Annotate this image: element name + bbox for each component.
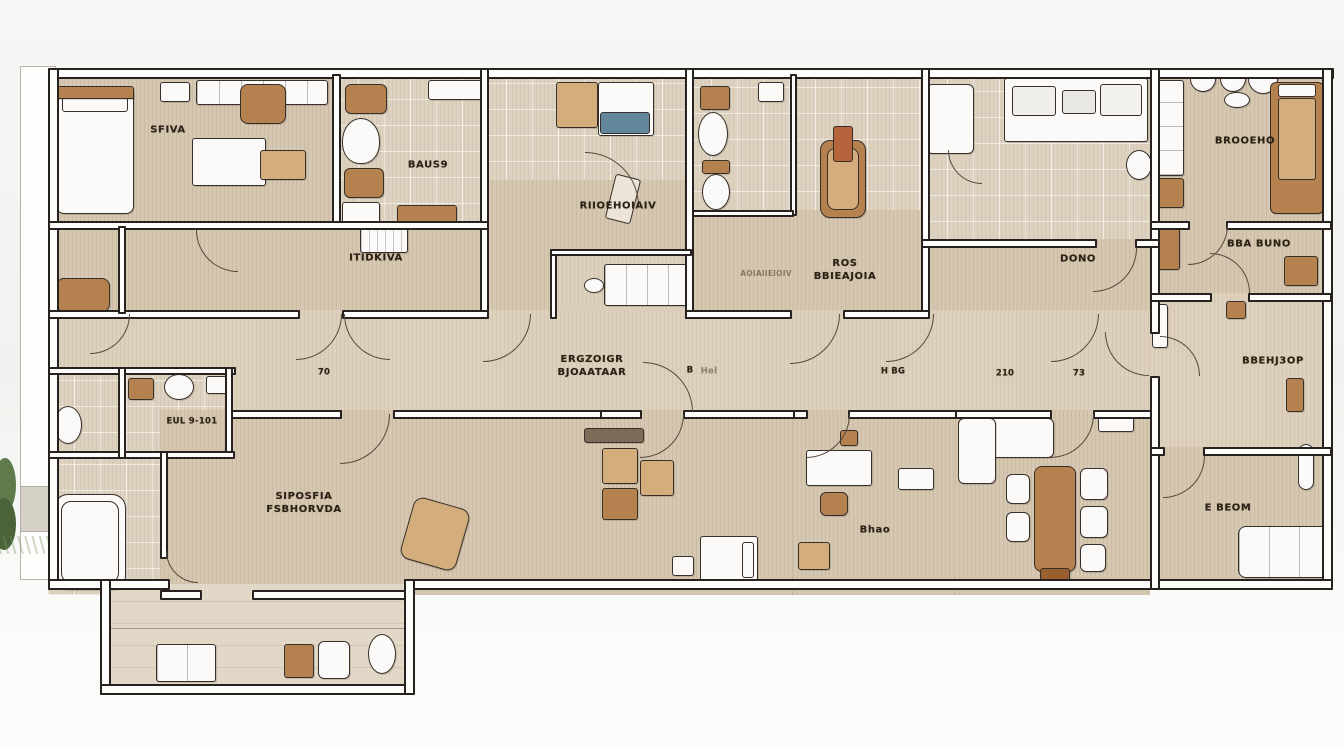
wall-segment: [48, 68, 59, 590]
wall-segment: [332, 74, 341, 226]
room-label-ros: ROS BBIEAJOIA: [814, 257, 877, 283]
nightstand: [672, 556, 694, 576]
sink-blue: [600, 112, 650, 134]
cabinet: [898, 468, 934, 490]
towel-rail: [833, 126, 853, 162]
cistern: [702, 160, 730, 174]
floor-plan: SFIVA BAUS9 ITIDKIVA RIIOEHOIAIV ROS BBI…: [0, 0, 1344, 750]
vanity: [128, 378, 154, 400]
extension-counter-line: [111, 628, 404, 630]
wall-segment: [404, 579, 415, 695]
wall-segment: [1150, 447, 1165, 456]
dresser: [1156, 178, 1184, 208]
dimension-marker: H BG: [881, 366, 905, 377]
dimension-marker: 73: [1073, 368, 1085, 379]
toilet-icon: [318, 641, 350, 679]
wall-segment: [955, 410, 1052, 419]
dimension-marker: 70: [318, 367, 330, 378]
radiator: [360, 227, 408, 253]
wall-segment: [921, 68, 930, 319]
wall-segment: [1135, 239, 1160, 248]
stove: [1012, 86, 1056, 116]
kitchen-cabinet: [556, 82, 598, 128]
wall-segment: [550, 249, 557, 319]
toilet-icon: [342, 118, 380, 164]
wall-segment: [160, 451, 168, 559]
wall-segment: [393, 410, 607, 419]
wall-segment: [790, 74, 797, 216]
headboard: [56, 86, 134, 99]
room-label-baus9: BAUS9: [408, 159, 448, 172]
dimension-marker: B: [687, 365, 694, 376]
room-label-eul: EUL 9-101: [167, 416, 218, 427]
shelf: [584, 428, 644, 443]
washbasin: [368, 634, 396, 674]
vanity: [284, 644, 314, 678]
wall-segment: [48, 310, 300, 319]
wall-segment: [48, 221, 489, 230]
shelf-unit: [604, 264, 692, 306]
room-ros-floor: [685, 210, 930, 319]
cistern: [700, 86, 730, 110]
washbasin: [1126, 150, 1152, 180]
cabinet: [344, 168, 384, 198]
room-label-siposfia-line2: FSBHORVDA: [266, 503, 341, 516]
wall-segment: [1093, 410, 1152, 419]
chair-icon: [1006, 512, 1030, 542]
vanity: [345, 84, 387, 114]
washbasin: [758, 82, 784, 102]
toilet-icon: [164, 374, 194, 400]
wall-segment: [550, 249, 692, 256]
sofa: [958, 418, 996, 484]
wall-segment: [118, 226, 126, 314]
room-itidkiva-floor: [48, 221, 489, 319]
wall-segment: [600, 410, 642, 419]
room-label-siposfia-line1: SIPOSFIA: [266, 490, 341, 503]
laundry-cabinet: [156, 644, 216, 682]
wall-segment: [480, 68, 489, 319]
wardrobe: [602, 488, 638, 520]
wall-segment: [1150, 376, 1160, 590]
floor-drain: [584, 278, 604, 293]
wall-segment: [921, 239, 1097, 248]
room-label-itidkiva: ITIDKIVA: [349, 252, 403, 265]
sink: [1062, 90, 1096, 114]
wall-segment: [1150, 293, 1212, 302]
washbasin: [1224, 92, 1250, 108]
chair-icon: [1006, 474, 1030, 504]
room-label-bhao: Bhao: [860, 524, 891, 537]
wall-segment: [225, 410, 342, 419]
wall-segment: [692, 210, 794, 217]
sofa: [1238, 526, 1330, 578]
dimension-marker: Hel: [701, 366, 717, 377]
room-label-brooeho: BROOEHO: [1215, 135, 1275, 148]
wall-segment: [1226, 221, 1332, 230]
wall-segment: [1203, 447, 1332, 456]
dimension-marker: 210: [996, 368, 1014, 379]
wall-segment: [848, 410, 957, 419]
wall-segment: [1150, 221, 1190, 230]
chair-icon: [1080, 468, 1108, 500]
chair-icon: [1080, 506, 1108, 538]
room-label-corridor-line2: BJOAATAAR: [558, 366, 627, 379]
bathtub-inner: [61, 501, 119, 583]
room-label-bbabuno: BBA BUNO: [1227, 238, 1291, 251]
room-label-corridor-line1: ERGZOIGR: [558, 353, 627, 366]
wall-segment: [252, 590, 410, 600]
wardrobe: [602, 448, 638, 484]
wall-cabinet: [428, 80, 486, 100]
fridge: [926, 84, 974, 154]
wall-segment: [100, 684, 415, 695]
wall-segment: [118, 367, 126, 459]
room-label-corridor: ERGZOIGR BJOAATAAR: [558, 353, 627, 379]
wall-segment: [100, 579, 111, 695]
pillow: [1278, 84, 1316, 97]
wall-segment: [48, 367, 236, 375]
dining-table: [1034, 466, 1076, 572]
chair-icon: [820, 492, 848, 516]
room-label-ebeom: E BEOM: [1205, 502, 1252, 515]
wall-segment: [1322, 68, 1333, 590]
wall-segment: [225, 367, 233, 459]
toilet-icon: [698, 112, 728, 156]
wall-segment: [48, 451, 235, 459]
cabinet: [1286, 378, 1304, 412]
armchair: [240, 84, 286, 124]
chair-icon: [1080, 544, 1106, 572]
side-table: [260, 150, 306, 180]
cabinet: [1226, 301, 1246, 319]
nightstand: [160, 82, 190, 102]
wall-segment: [685, 68, 694, 319]
desk: [192, 138, 266, 186]
bench: [56, 278, 110, 312]
room-label-bbehj3op: BBEHJ3OP: [1242, 355, 1304, 368]
room-label-ros-line2: BBIEAJOIA: [814, 270, 877, 283]
wall-segment: [1248, 293, 1332, 302]
room-label-rioehoiav: RIIOEHOIAIV: [580, 200, 657, 213]
room-label-siposfia: SIPOSFIA FSBHORVDA: [266, 490, 341, 516]
wardrobe: [1156, 80, 1184, 176]
room-label-sfiva: SFIVA: [150, 124, 186, 137]
oven: [1100, 84, 1142, 116]
pillow: [742, 542, 754, 578]
room-label-dono: DONO: [1060, 253, 1096, 266]
wall-segment: [160, 590, 202, 600]
wall-segment: [685, 310, 792, 319]
wall-segment: [683, 410, 799, 419]
wall-segment: [404, 579, 1333, 590]
wardrobe: [640, 460, 674, 496]
toilet-icon: [702, 174, 730, 210]
nightstand: [1284, 256, 1318, 286]
ottoman: [798, 542, 830, 570]
mattress: [1278, 98, 1316, 180]
room-label-ros-line1: ROS: [814, 257, 877, 270]
room-note-ros: AOIAIIEIOIV: [740, 269, 791, 279]
